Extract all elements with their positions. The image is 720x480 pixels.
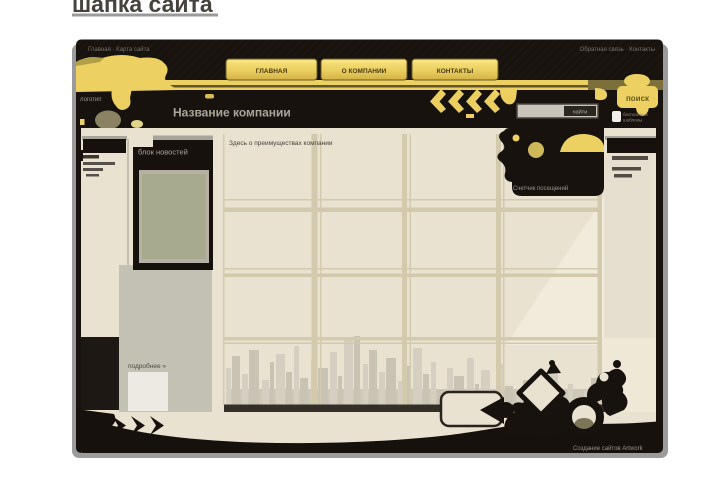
svg-text:логотип: логотип [80,97,102,103]
svg-text:Обратная связь · Контакты: Обратная связь · Контакты [580,47,655,53]
svg-text:найти: найти [573,109,588,116]
svg-text:Здесь о преимуществах компании: Здесь о преимуществах компании [229,140,333,147]
svg-text:подробнее »: подробнее » [128,362,166,370]
svg-text:КОНТАКТЫ: КОНТАКТЫ [437,68,473,75]
svg-text:ГЛАВНАЯ: ГЛАВНАЯ [256,68,288,75]
svg-text:блок новостей: блок новостей [138,148,188,157]
svg-text:поиск: поиск [626,94,650,103]
svg-text:бесплатные: бесплатные [623,112,649,117]
svg-text:Создание сайтов Artwork: Создание сайтов Artwork [573,445,644,452]
svg-text:Название компании: Название компании [173,106,291,120]
svg-text:Главная · Карта сайта: Главная · Карта сайта [88,46,150,53]
svg-text:Счетчик посещений: Счетчик посещений [513,185,568,192]
svg-text:О КОМПАНИИ: О КОМПАНИИ [342,68,387,75]
svg-text:шаблоны: шаблоны [623,118,642,123]
